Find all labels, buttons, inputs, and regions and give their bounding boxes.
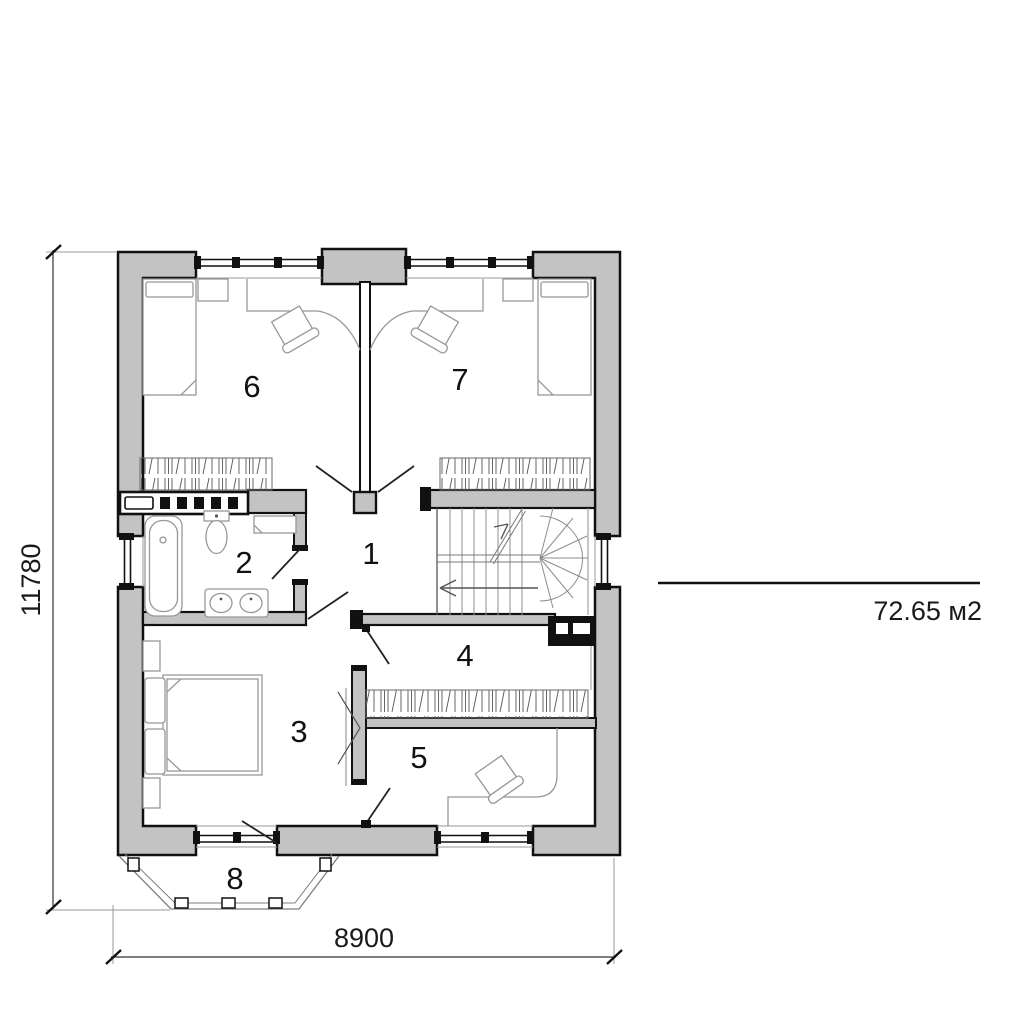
window-right-wall: [595, 533, 611, 590]
room5-furniture: [448, 728, 557, 826]
room-label-7: 7: [451, 362, 468, 397]
room-label-3: 3: [290, 714, 307, 749]
hinge-block: [362, 625, 370, 632]
window-top-right: [404, 256, 534, 278]
room-label-6: 6: [243, 369, 260, 404]
door-room6: [316, 466, 352, 492]
bathroom-fixtures: [145, 511, 296, 617]
balcony-post: [222, 898, 235, 908]
nightstand: [198, 279, 228, 301]
window-top-left: [194, 256, 324, 278]
bathtub-inner: [150, 521, 178, 612]
pillow: [146, 282, 193, 297]
pillow-top: [145, 678, 165, 723]
sink-right: [240, 594, 262, 613]
window-bottom-right: [434, 826, 534, 847]
toilet-bowl: [206, 521, 227, 554]
desk-room7: [412, 279, 483, 311]
wardrobe-room6: [140, 458, 272, 490]
sink-left: [210, 594, 232, 613]
wall-bottom-center-pier: [277, 826, 437, 855]
door-room7: [378, 466, 414, 492]
door-room3: [308, 592, 348, 619]
door-jamb: [420, 487, 431, 511]
dimension-width: 8900: [106, 858, 622, 964]
dimension-width-label: 8900: [334, 923, 394, 953]
room7-furniture: [370, 279, 591, 490]
room3-furniture: [143, 641, 262, 808]
area-note: 72.65 м2: [658, 583, 982, 626]
balcony-post: [128, 858, 139, 871]
area-label: 72.65 м2: [873, 596, 982, 626]
pillow-bottom: [145, 729, 165, 774]
desk-room6: [247, 279, 318, 311]
hall-top-wall: [430, 490, 595, 508]
nightstand: [503, 279, 533, 301]
door-balcony: [242, 821, 277, 843]
bathtub-drain: [160, 537, 166, 543]
room-label-8: 8: [226, 861, 243, 896]
nightstand: [143, 641, 160, 671]
wardrobe-room4: [366, 690, 588, 718]
room-label-4: 4: [456, 638, 473, 673]
door-jamb: [351, 779, 367, 785]
desk-curve: [370, 311, 412, 350]
room-label-1: 1: [362, 536, 379, 571]
partition-end-block: [354, 492, 376, 513]
room-label-5: 5: [410, 740, 427, 775]
nightstand: [143, 778, 160, 808]
hinge-block: [361, 820, 371, 828]
partition-6-7: [360, 282, 370, 492]
desk-curve: [318, 311, 360, 350]
wall-under-room6: [248, 490, 306, 513]
balcony-post: [175, 898, 188, 908]
balcony-post: [320, 858, 331, 871]
wall-room4-room5: [366, 718, 596, 728]
wardrobe-room7: [440, 458, 590, 490]
door-jamb: [350, 610, 363, 629]
door-room3-room5: [367, 788, 390, 822]
pillow: [541, 282, 588, 297]
door-room4: [366, 629, 389, 664]
door-jamb: [351, 665, 367, 671]
wall-top-center-pier: [322, 249, 406, 284]
window-left-wall: [119, 533, 143, 590]
stair-break-line: [490, 509, 525, 564]
bed-room3: [163, 675, 262, 775]
balcony-post: [269, 898, 282, 908]
door-bathroom: [272, 549, 300, 579]
dimension-height-label: 11780: [16, 543, 46, 616]
floor-plan-page: 11780 8900 72.65 м2 1 2 3 4 5 6 7 8: [0, 0, 1024, 1011]
stair-direction-arrow: [440, 524, 538, 596]
staircase: [437, 508, 588, 615]
vent-block-room4: [548, 616, 596, 646]
hall-bottom-wall: [352, 614, 555, 625]
floor-plan-drawing: 11780 8900 72.65 м2 1 2 3 4 5 6 7 8: [0, 0, 1024, 1011]
room-label-2: 2: [235, 545, 252, 580]
door-jamb: [292, 579, 308, 585]
